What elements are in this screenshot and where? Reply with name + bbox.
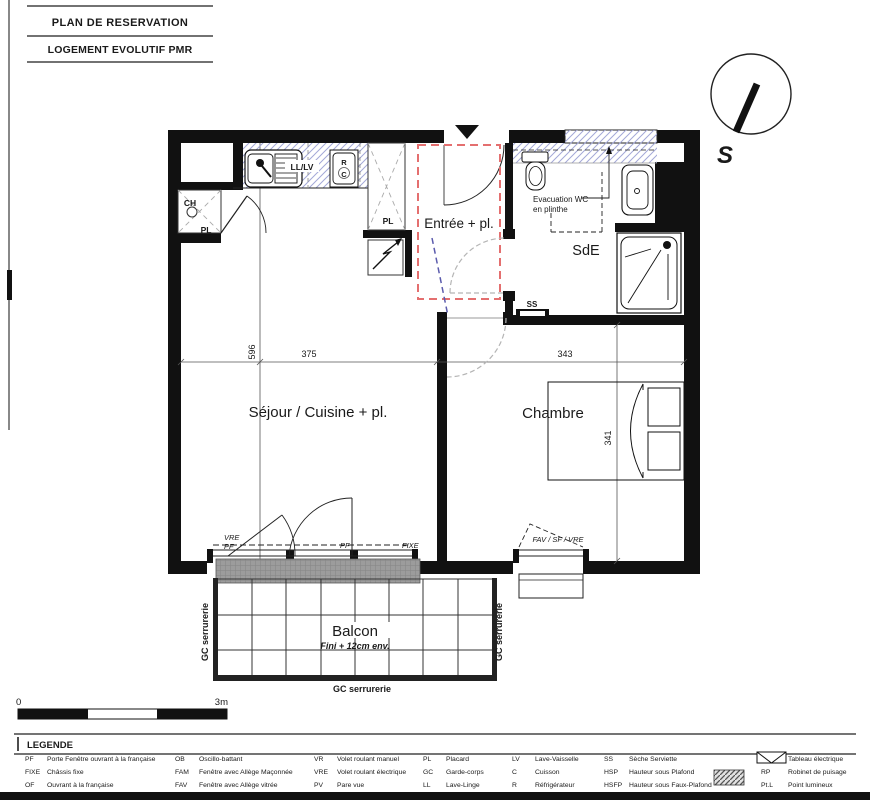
legend-label: Robinet de puisage (788, 769, 847, 776)
room-sde-label: SdE (572, 243, 600, 259)
fridge-cooktop-icon: R C (330, 150, 358, 187)
sde-door-swing (450, 238, 505, 293)
floor-plan-page: PLAN DE RESERVATION LOGEMENT EVOLUTIF PM… (0, 0, 870, 800)
legend-label: Porte Fenêtre ouvrant à la française (47, 756, 156, 763)
railing-label-right: GC serrurerie (494, 603, 504, 661)
hsfp-hatch-swatch-icon (714, 770, 744, 785)
fridge-label: R (341, 158, 347, 167)
towel-dryer-label: SS (527, 300, 538, 309)
electrical-board-icon (757, 752, 786, 763)
closet-ch-pl-label: PL (201, 225, 212, 235)
legend-label: Placard (446, 756, 469, 763)
legend-label: Cuisson (535, 769, 560, 776)
legend-label: Châssis fixe (47, 769, 84, 776)
dim-341: 341 (603, 430, 613, 445)
room-sejour-label: Séjour / Cuisine + pl. (249, 404, 388, 421)
window-label-pf-left: PF (224, 542, 234, 551)
legend-abbr: HSFP (604, 782, 623, 789)
legend-abbr: PF (25, 756, 34, 763)
legend-label: Pare vue (337, 782, 364, 789)
legend-label: Tableau électrique (788, 756, 843, 763)
floor-plan-drawing: PLAN DE RESERVATION LOGEMENT EVOLUTIF PM… (0, 0, 870, 800)
kitchen: R C LL/LV (233, 143, 368, 188)
legend-abbr: OF (25, 782, 34, 789)
towel-dryer-icon (516, 309, 549, 318)
legend-label: Point lumineux (788, 782, 833, 789)
entree-zone: Entrée + pl. (418, 145, 505, 316)
legend-label: Ouvrant à la française (47, 782, 114, 789)
railing-label-bottom: GC serrurerie (333, 684, 391, 694)
window-label-vre: VRE (224, 533, 240, 542)
scale-bar: 0 3m (16, 697, 228, 719)
chambre-window: FAV / SF / VRE (519, 524, 584, 598)
dim-596: 596 (247, 344, 257, 359)
window-label-fixe: FIXE (402, 541, 420, 550)
legend-label: Réfrigérateur (535, 782, 575, 789)
closet-pl-top-label: PL (383, 216, 394, 226)
shower-icon (617, 233, 681, 313)
legend-abbr: OB (175, 756, 185, 763)
evacuation-note-1: Evacuation WC (533, 195, 588, 204)
bed-icon (548, 382, 684, 480)
electrical-panel-icon (368, 238, 403, 275)
legend-label: Sèche Serviette (629, 756, 677, 763)
room-chambre-label: Chambre (522, 405, 584, 422)
legend-abbr: FAM (175, 769, 189, 776)
scale-max: 3m (215, 697, 228, 708)
legend-label: Hauteur sous Faux-Plafond (629, 782, 712, 789)
legend-abbr: R (512, 782, 517, 789)
future-partition-line (432, 238, 448, 316)
legend-abbr: VRE (314, 769, 328, 776)
entrance-arrow-icon (455, 125, 479, 139)
page-edge (7, 0, 12, 430)
cooking-label: C (341, 170, 347, 179)
legend-abbr: GC (423, 769, 433, 776)
compass-needle-icon (736, 84, 757, 132)
legend-abbr: FIXE (25, 769, 41, 776)
window-label-pf-mid: PF (340, 541, 350, 550)
hatched-wall (565, 130, 657, 143)
legend-label: Fenêtre avec Allège Maçonnée (199, 769, 293, 776)
room-balcon-label: Balcon (332, 623, 378, 640)
plan-title: PLAN DE RESERVATION (52, 17, 189, 29)
closet-pl-top: PL (368, 143, 405, 230)
dim-375: 375 (301, 349, 316, 359)
toilet-icon (522, 152, 548, 190)
legend-label: Volet roulant électrique (337, 769, 406, 776)
sejour-window: VRE PF PF FIXE (213, 498, 420, 556)
chambre-door (447, 318, 506, 377)
legend: LEGENDE PF Porte Fenêtre ouvrant à la fr… (0, 734, 870, 800)
legend-label: Garde-corps (446, 769, 484, 776)
compass-south-label: S (717, 142, 733, 169)
legend-abbr: PV (314, 782, 324, 789)
legend-abbr: SS (604, 756, 614, 763)
washbasin-icon (622, 165, 653, 215)
closet-ch: CH PL (178, 190, 266, 235)
window-label-fav: FAV / SF / VRE (533, 535, 585, 544)
plan-subtitle: LOGEMENT EVOLUTIF PMR (48, 44, 193, 56)
dimension-labels: 596 375 343 341 (247, 344, 613, 445)
legend-abbr: HSP (604, 769, 618, 776)
legend-abbr: Pt.L (761, 782, 773, 789)
legend-abbr: VR (314, 756, 324, 763)
legend-label: Volet roulant manuel (337, 756, 399, 763)
washer-dishwasher-label: LL/LV (291, 162, 314, 172)
bottom-border (0, 792, 870, 800)
legend-abbr: C (512, 769, 517, 776)
room-entree-label: Entrée + pl. (424, 216, 493, 231)
legend-label: Oscillo-battant (199, 756, 243, 763)
compass: S (711, 54, 791, 169)
legend-label: Fenêtre avec Allège vitrée (199, 782, 278, 789)
balcony: Balcon Fini + 12cm env. GC serrurerie GC… (200, 578, 504, 694)
evacuation-note-2: en plinthe (533, 205, 568, 214)
legend-label: Lave-Vaisselle (535, 756, 579, 763)
legend-abbr: RP (761, 769, 771, 776)
title-block: PLAN DE RESERVATION LOGEMENT EVOLUTIF PM… (27, 6, 213, 62)
legend-abbr: FAV (175, 782, 188, 789)
water-heater-label: CH (184, 198, 196, 208)
legend-label: Lave-Linge (446, 782, 480, 789)
legend-abbr: PL (423, 756, 432, 763)
scale-zero: 0 (16, 697, 21, 708)
dim-343: 343 (557, 349, 572, 359)
legend-title: LEGENDE (27, 740, 73, 751)
balcon-note: Fini + 12cm env. (320, 641, 389, 651)
legend-abbr: LL (423, 782, 431, 789)
legend-label: Hauteur sous Plafond (629, 769, 695, 776)
legend-abbr: LV (512, 756, 520, 763)
railing-label-left: GC serrurerie (200, 603, 210, 661)
